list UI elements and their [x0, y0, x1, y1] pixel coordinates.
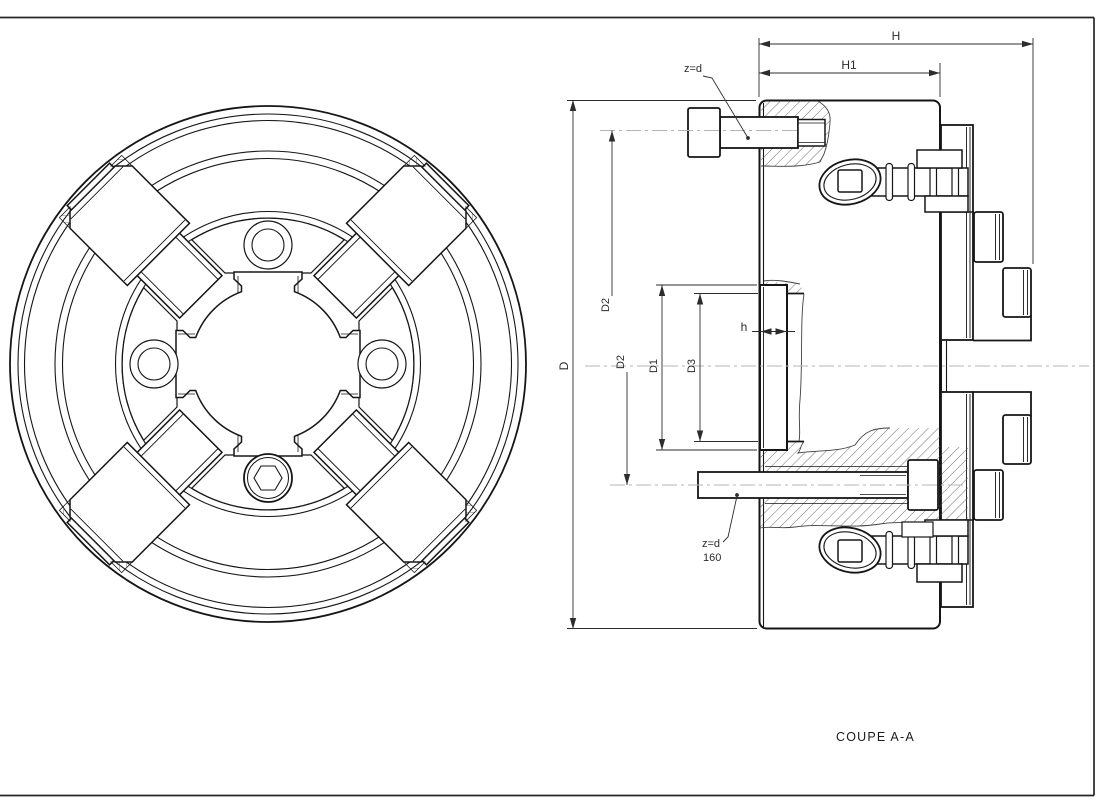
hex-socket-screw [244, 454, 292, 502]
view-caption: COUPE A-A [836, 730, 915, 744]
face-hole-right [358, 340, 406, 388]
top-jaw-steps [973, 212, 1031, 341]
leader-label-z-d-top: z=d [684, 63, 702, 75]
face-hole-left [130, 340, 178, 388]
section-view-coupe-a-a [585, 101, 1089, 629]
leader-label-160: 160 [703, 552, 721, 564]
dimension-D2-lower: D2 [615, 355, 630, 485]
dimension-D3: D3 [686, 294, 703, 442]
dimension-D: D [557, 100, 576, 629]
dimension-label-D2-upper: D2 [600, 298, 612, 312]
leader-bottom-bolt: z=d 160 [702, 493, 739, 564]
dimension-label-D: D [557, 361, 571, 370]
face-hole-top [244, 221, 292, 269]
dimension-H1: H1 [759, 58, 940, 76]
dimension-label-D1: D1 [648, 359, 660, 373]
dimension-label-H1: H1 [841, 58, 857, 72]
bottom-jaw-steps [973, 392, 1031, 520]
dimension-label-D2-lower: D2 [615, 355, 627, 369]
dimension-D1: D1 [648, 285, 665, 450]
dimension-D2-upper: D2 [600, 131, 615, 313]
front-view-four-jaw-chuck [10, 106, 526, 622]
technical-drawing-page: H H1 D D2 D2 [0, 0, 1096, 810]
dimension-label-D3: D3 [686, 359, 698, 373]
dimension-label-h: h [741, 320, 748, 334]
dimension-label-H: H [892, 29, 901, 43]
central-cross-opening [176, 272, 360, 456]
dimension-H: H [759, 29, 1033, 47]
leader-label-z-d-bottom: z=d [702, 538, 720, 550]
chuck-drawing-svg: H H1 D D2 D2 [0, 0, 1096, 810]
